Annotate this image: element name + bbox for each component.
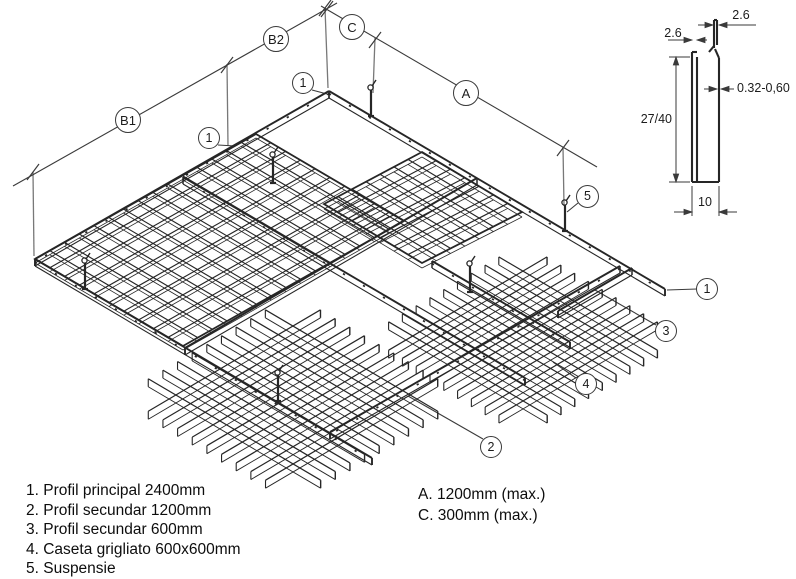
dim-bubble-c: C — [339, 14, 365, 40]
detail-dim-top-fold: 2.6 — [728, 9, 754, 22]
callout-3: 3 — [655, 320, 677, 342]
detail-dim-height: 27/40 — [630, 113, 672, 126]
callout-5-label: 5 — [584, 190, 591, 203]
callout-1-label: 1 — [704, 283, 711, 296]
callout-1-right: 1 — [696, 278, 718, 300]
detail-dim-width: 10 — [693, 196, 717, 209]
dim-label-b1: B1 — [120, 114, 136, 127]
legend-item-3: 3. Profil secundar 600mm — [26, 520, 241, 540]
dim-bubble-a: A — [453, 80, 479, 106]
legend-dim-c: C. 300mm (max.) — [418, 505, 545, 526]
legend-parts: 1. Profil principal 2400mm 2. Profil sec… — [26, 481, 241, 579]
legend-item-5: 5. Suspensie — [26, 559, 241, 579]
dim-label-c: C — [347, 21, 356, 34]
dim-label-b2: B2 — [268, 33, 284, 46]
dim-label-a: A — [462, 87, 471, 100]
callout-1-apex: 1 — [292, 72, 314, 94]
drawing-canvas: B1 B2 C A 1 1 5 1 3 4 2 2.6 2.6 0.32-0,6… — [0, 0, 796, 579]
callout-1-left: 1 — [198, 127, 220, 149]
callout-4: 4 — [575, 373, 597, 395]
callout-1-label: 1 — [300, 77, 307, 90]
legend-dimensions: A. 1200mm (max.) C. 300mm (max.) — [418, 484, 545, 526]
detail-dim-left-fold: 2.6 — [660, 27, 686, 40]
callout-1-label: 1 — [206, 132, 213, 145]
detail-dim-thickness: 0.32-0,60 — [737, 82, 790, 95]
callout-4-label: 4 — [583, 378, 590, 391]
callout-5: 5 — [576, 185, 599, 208]
legend-item-4: 4. Caseta grigliato 600x600mm — [26, 540, 241, 560]
legend-item-2: 2. Profil secundar 1200mm — [26, 501, 241, 521]
callout-2: 2 — [480, 436, 502, 458]
callout-3-label: 3 — [663, 325, 670, 338]
callout-2-label: 2 — [488, 441, 495, 454]
dim-bubble-b1: B1 — [115, 107, 141, 133]
legend-item-1: 1. Profil principal 2400mm — [26, 481, 241, 501]
legend-dim-a: A. 1200mm (max.) — [418, 484, 545, 505]
dim-bubble-b2: B2 — [263, 26, 289, 52]
